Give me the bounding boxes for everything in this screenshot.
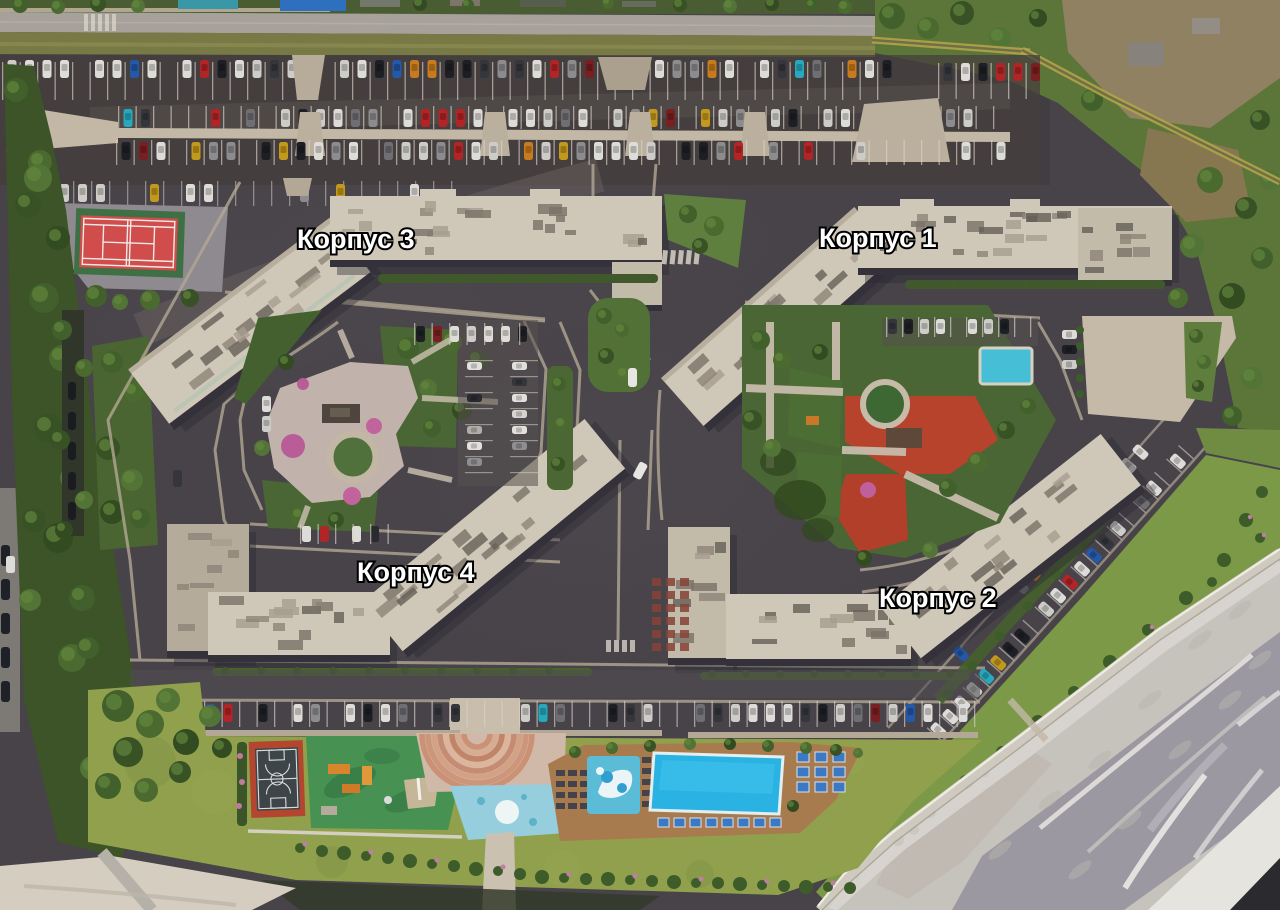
svg-text:Корпус 4: Корпус 4	[357, 557, 475, 587]
svg-text:Корпус 3: Корпус 3	[297, 224, 415, 254]
svg-text:Корпус 1: Корпус 1	[819, 223, 937, 253]
svg-text:Корпус 2: Корпус 2	[879, 583, 997, 613]
